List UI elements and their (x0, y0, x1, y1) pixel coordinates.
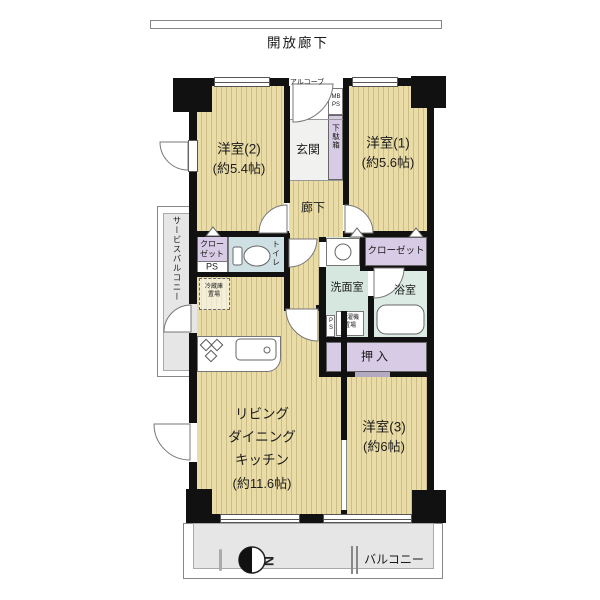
western2-name: 洋室(2) (217, 141, 261, 160)
western3-sliding-door (341, 440, 347, 510)
wall-oshiire-bottom-a (319, 372, 355, 377)
western2-top-window (214, 77, 270, 87)
pipe-space-top-label: PS (332, 101, 340, 109)
open-corridor-bar (150, 20, 442, 29)
western1-name: 洋室(1) (366, 135, 410, 154)
wall-western2-bottom (189, 231, 289, 237)
wall-hall-ldk-stub (316, 305, 326, 311)
wall-left-d (189, 462, 197, 489)
wall-left-b (189, 172, 197, 304)
bath-area (374, 266, 427, 337)
wall-bottom-a (197, 514, 220, 523)
wall-wash-left-a (319, 237, 326, 242)
western3-name: 洋室(3) (362, 419, 406, 438)
vanity-counter (326, 238, 360, 266)
western2-window-arc (160, 142, 188, 170)
floor-plan: 開放廊下 サービスバルコニー (0, 0, 600, 600)
pillar-top-right (411, 76, 446, 108)
refrigerator-line2: 置場 (208, 291, 220, 299)
western2-area: (約5.4帖) (213, 160, 266, 178)
ldk-line1: リビング (235, 406, 289, 425)
wall-closet-right-left (360, 237, 365, 266)
wall-bath-left-a (368, 266, 374, 271)
wall-left-c (189, 333, 197, 423)
ldk-line4: (約11.6帖) (233, 475, 292, 493)
wall-entrance-right (343, 86, 349, 205)
closet-left-line2: ゼット (200, 248, 224, 259)
service-balcony-label: サービスバルコニー (171, 216, 183, 302)
closet-right-label: クローゼット (367, 244, 424, 257)
hallway-floor-lower (289, 237, 320, 311)
bath-label: 浴室 (394, 283, 416, 298)
wall-bath-left-b (368, 296, 374, 337)
entrance-label: 玄関 (296, 142, 320, 159)
alcove-label: アルコーブ (290, 78, 324, 88)
oshiire-sliding-door (355, 372, 390, 377)
wall-ldk-western3-a (341, 311, 347, 440)
wall-wash-left-b (319, 267, 326, 377)
entrance-threshold-line (289, 119, 343, 120)
wall-oshiire-bottom-b (390, 372, 427, 377)
pipe-space-wash-label: PS (328, 318, 334, 332)
ldk-line3: キッチン (235, 452, 289, 471)
kitchen-counter (197, 336, 281, 372)
shoe-box-label: 下駄箱 (331, 124, 342, 150)
wall-right (427, 108, 434, 490)
western3-balcony-window (323, 514, 412, 523)
oshiire-label: 押入 (361, 349, 391, 366)
western1-top-window (352, 77, 398, 87)
hallway-label: 廊下 (301, 200, 325, 217)
western3-area: (約6帖) (363, 438, 405, 456)
wall-bottom-c (412, 514, 427, 523)
open-corridor-label: 開放廊下 (267, 35, 329, 54)
toilet-label: トイレ (271, 240, 282, 267)
entrance-hall-line (289, 180, 343, 181)
pipe-space-left-label: PS (206, 261, 218, 274)
wall-left-a (189, 78, 197, 140)
ldk-side-door-arc (154, 424, 190, 460)
wall-western1-bottom (343, 231, 434, 237)
ldk-balcony-window (220, 514, 300, 523)
western1-area: (約5.6帖) (362, 154, 415, 172)
wall-top-b (270, 78, 289, 86)
wall-top-c (343, 78, 352, 86)
wall-bath-bottom (319, 337, 427, 342)
laundry-line2: 置場 (344, 322, 356, 330)
service-door-gap (189, 304, 197, 333)
balcony-label: バルコニー (364, 552, 424, 569)
ldk-line2: ダイニング (228, 429, 296, 448)
wall-bottom-b (300, 514, 323, 523)
washroom-label: 洗面室 (331, 280, 364, 295)
western2-side-window (188, 140, 198, 172)
wall-entrance-left (284, 86, 290, 203)
